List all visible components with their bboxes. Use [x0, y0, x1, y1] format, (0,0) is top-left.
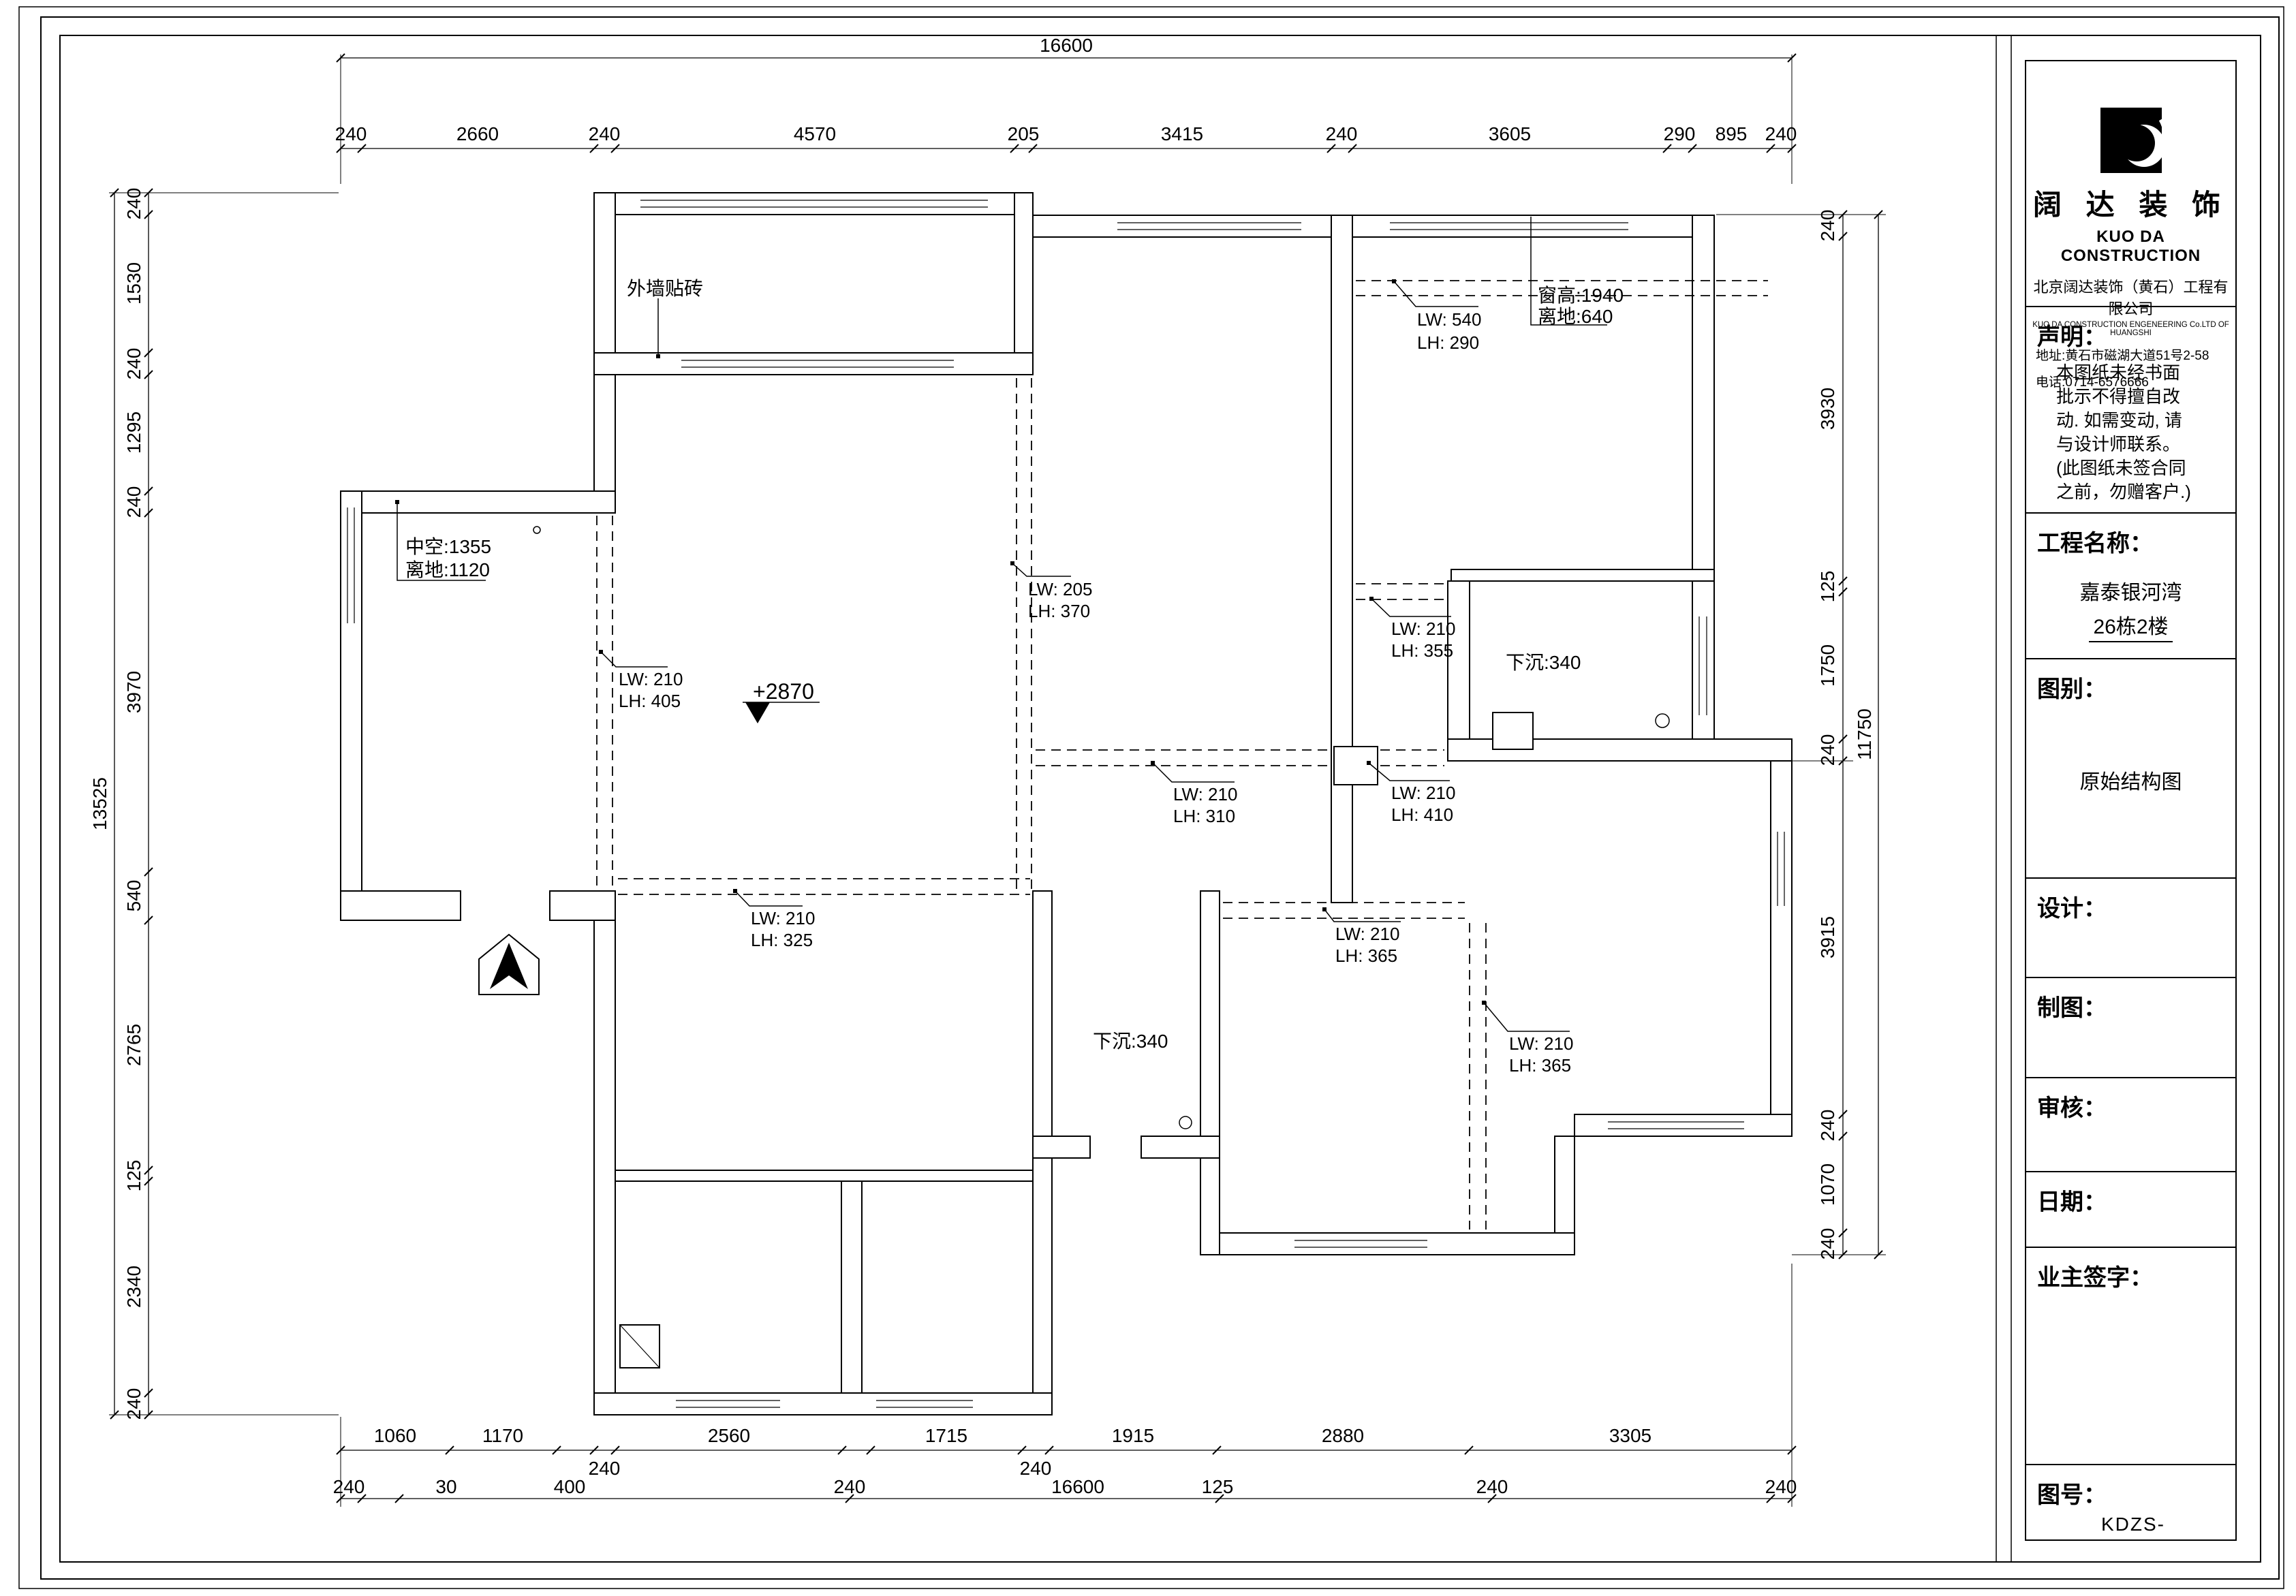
- dim-label: 240: [1817, 1228, 1838, 1260]
- dim-label: 1060: [374, 1425, 416, 1446]
- design-panel: 设计：: [2026, 879, 2235, 978]
- statement-line: 与设计师联系。: [2056, 433, 2235, 456]
- dim-label: 240: [1765, 123, 1797, 144]
- bay-window-label: 离地:1120: [405, 559, 490, 580]
- dim-label: 4570: [794, 123, 836, 144]
- dim-bottom-total: 16600: [1051, 1476, 1104, 1497]
- window-height-label: 窗高:1940: [1538, 285, 1624, 306]
- columns: [1334, 713, 1533, 785]
- dim-label: 240: [123, 1388, 144, 1420]
- drawing-type-panel: 图别： 原始结构图: [2026, 659, 2235, 879]
- dim-label: 2765: [123, 1024, 144, 1066]
- dim-label: 2340: [123, 1266, 144, 1308]
- draft-panel: 制图：: [2026, 978, 2235, 1078]
- dim-label: 540: [123, 880, 144, 912]
- dim-label: 3305: [1609, 1425, 1651, 1446]
- window-height-label: 离地:640: [1538, 306, 1613, 327]
- beam-label: LW: 210: [751, 908, 815, 928]
- beam-label: LW: 210: [1509, 1033, 1573, 1054]
- review-header: 审核：: [2026, 1078, 2235, 1123]
- dim-label: 895: [1716, 123, 1748, 144]
- drawing-no-value: KDZS-: [2101, 1514, 2235, 1535]
- dim-label: 290: [1664, 123, 1696, 144]
- company-logo-icon: [2100, 108, 2162, 173]
- bay-window-label: 中空:1355: [405, 536, 491, 557]
- dim-label: 1715: [925, 1425, 967, 1446]
- beam-label: LW: 210: [1173, 784, 1237, 804]
- project-panel: 工程名称： 嘉泰银河湾 26栋2楼: [2026, 514, 2235, 659]
- statement-line: 本图纸未经书面: [2056, 361, 2235, 385]
- owner-sign-header: 业主签字：: [2026, 1248, 2235, 1292]
- design-header: 设计：: [2026, 879, 2235, 923]
- dim-label: 240: [1817, 734, 1838, 766]
- dim-label: 400: [554, 1476, 586, 1497]
- dim-label: 125: [1817, 571, 1838, 603]
- dim-top-total: 16600: [1040, 35, 1093, 56]
- owner-sign-panel: 业主签字：: [2026, 1248, 2235, 1465]
- beam-label: LH: 405: [619, 691, 681, 711]
- dim-label: 240: [123, 486, 144, 518]
- dim-label: 240: [589, 1458, 621, 1479]
- dim-label: 240: [333, 1476, 365, 1497]
- statement-line: 批示不得擅自改: [2056, 385, 2235, 409]
- dim-left: 13525 240 1530 240 1295 240 3970 540 276…: [89, 188, 144, 1420]
- dim-label: 205: [1008, 123, 1040, 144]
- dim-label: 3415: [1161, 123, 1203, 144]
- company-panel: 阔 达 装 饰 KUO DA CONSTRUCTION 北京阔达装饰（黄石）工程…: [2026, 61, 2235, 307]
- dim-top: 16600 240 2660 240 4570 205 3415 240 360…: [335, 35, 1797, 144]
- company-name-cn: 阔 达 装 饰: [2026, 182, 2235, 223]
- dim-label: 240: [1020, 1458, 1052, 1479]
- dim-label: 240: [1765, 1476, 1797, 1497]
- dim-label: 1915: [1112, 1425, 1154, 1446]
- dim-left-total: 13525: [89, 777, 110, 830]
- dim-label: 1170: [482, 1425, 523, 1446]
- beam-label: LW: 205: [1028, 579, 1092, 599]
- beam-label: LH: 355: [1391, 640, 1453, 661]
- dim-label: 3970: [123, 671, 144, 713]
- company-name-en: KUO DA CONSTRUCTION: [2026, 228, 2235, 266]
- date-header: 日期：: [2026, 1172, 2235, 1217]
- dim-label: 240: [335, 123, 367, 144]
- dim-label: 3915: [1817, 916, 1838, 958]
- walls: [341, 193, 1792, 1415]
- review-panel: 审核：: [2026, 1078, 2235, 1172]
- dim-label: 125: [1202, 1476, 1234, 1497]
- dim-label: 240: [1326, 123, 1358, 144]
- project-name: 嘉泰银河湾: [2026, 576, 2235, 606]
- drawing-no-panel: 图号： KDZS-: [2026, 1465, 2235, 1542]
- dim-label: 3605: [1489, 123, 1531, 144]
- closet-icon: [620, 1325, 660, 1368]
- dim-label: 2560: [708, 1425, 750, 1446]
- sunken-label: 下沉:340: [1093, 1031, 1168, 1052]
- dimension-ticks: [110, 54, 1882, 1503]
- dim-label: 125: [123, 1160, 144, 1192]
- drawing-sheet: 16600 240 2660 240 4570 205 3415 240 360…: [0, 0, 2296, 1596]
- beam-label: LH: 290: [1417, 332, 1479, 353]
- dim-right-total: 11750: [1854, 708, 1875, 760]
- dim-label: 240: [123, 188, 144, 220]
- statement-line: 之前，勿赠客户.): [2056, 480, 2235, 504]
- dim-label: 2660: [456, 123, 499, 144]
- beam-label: LW: 210: [1391, 619, 1455, 639]
- beam-label: LH: 310: [1173, 806, 1235, 826]
- dim-right: 11750 240 3930 125 1750 240 3915 240 107…: [1817, 210, 1875, 1260]
- drawing-no-header: 图号：: [2026, 1465, 2235, 1509]
- entry-arrow-icon: [479, 935, 539, 995]
- extension-lines: [109, 54, 1886, 1507]
- dim-bottom: 1060 1170 2560 1715 1915 2880 3305 240 2…: [333, 1425, 1797, 1497]
- floor-plan-canvas: 16600 240 2660 240 4570 205 3415 240 360…: [0, 0, 2296, 1596]
- statement-line: 动. 如需变动, 请: [2056, 409, 2235, 433]
- dim-label: 1070: [1817, 1163, 1838, 1206]
- dim-label: 3930: [1817, 388, 1838, 430]
- dim-label: 30: [435, 1476, 456, 1497]
- dim-label: 240: [123, 348, 144, 380]
- sunken-label: 下沉:340: [1506, 652, 1581, 673]
- date-panel: 日期：: [2026, 1172, 2235, 1248]
- elevation-marker-icon: [745, 702, 770, 723]
- beam-label: LH: 370: [1028, 601, 1090, 621]
- dimension-lines: [114, 58, 1878, 1499]
- dim-label: 240: [1817, 1110, 1838, 1142]
- beam-label: LW: 210: [1335, 924, 1399, 944]
- dim-label: 240: [589, 123, 621, 144]
- beam-label: LW: 540: [1417, 309, 1481, 330]
- beam-label: LW: 210: [619, 669, 683, 689]
- beam-label: LH: 365: [1335, 945, 1397, 966]
- project-header: 工程名称：: [2026, 514, 2235, 558]
- plan-annotations: 外墙贴砖 中空:1355 离地:1120 窗高:1940 离地:640 +287…: [405, 278, 1624, 1076]
- draft-header: 制图：: [2026, 978, 2235, 1022]
- dim-label: 240: [1817, 210, 1838, 242]
- drawing-type-value: 原始结构图: [2026, 765, 2235, 795]
- dim-label: 1530: [123, 262, 144, 304]
- dim-label: 1750: [1817, 644, 1838, 687]
- beam-label: LH: 410: [1391, 804, 1453, 825]
- dim-label: 240: [1476, 1476, 1508, 1497]
- project-building: 26栋2楼: [2089, 610, 2172, 642]
- statement-panel: 声明： 本图纸未经书面 批示不得擅自改 动. 如需变动, 请 与设计师联系。 (…: [2026, 307, 2235, 514]
- dim-label: 2880: [1322, 1425, 1364, 1446]
- drawing-type-header: 图别：: [2026, 659, 2235, 704]
- beam-label: LH: 325: [751, 930, 813, 950]
- statement-header: 声明：: [2026, 307, 2235, 351]
- beam-label: LH: 365: [1509, 1055, 1571, 1076]
- ext-wall-label: 外墙贴砖: [627, 278, 703, 299]
- elevation-label: +2870: [753, 679, 814, 704]
- statement-line: (此图纸未签合同: [2056, 456, 2235, 480]
- dim-label: 1295: [123, 411, 144, 454]
- title-block: 阔 达 装 饰 KUO DA CONSTRUCTION 北京阔达装饰（黄石）工程…: [2025, 60, 2237, 1541]
- beam-label: LW: 210: [1391, 783, 1455, 803]
- dim-label: 240: [834, 1476, 866, 1497]
